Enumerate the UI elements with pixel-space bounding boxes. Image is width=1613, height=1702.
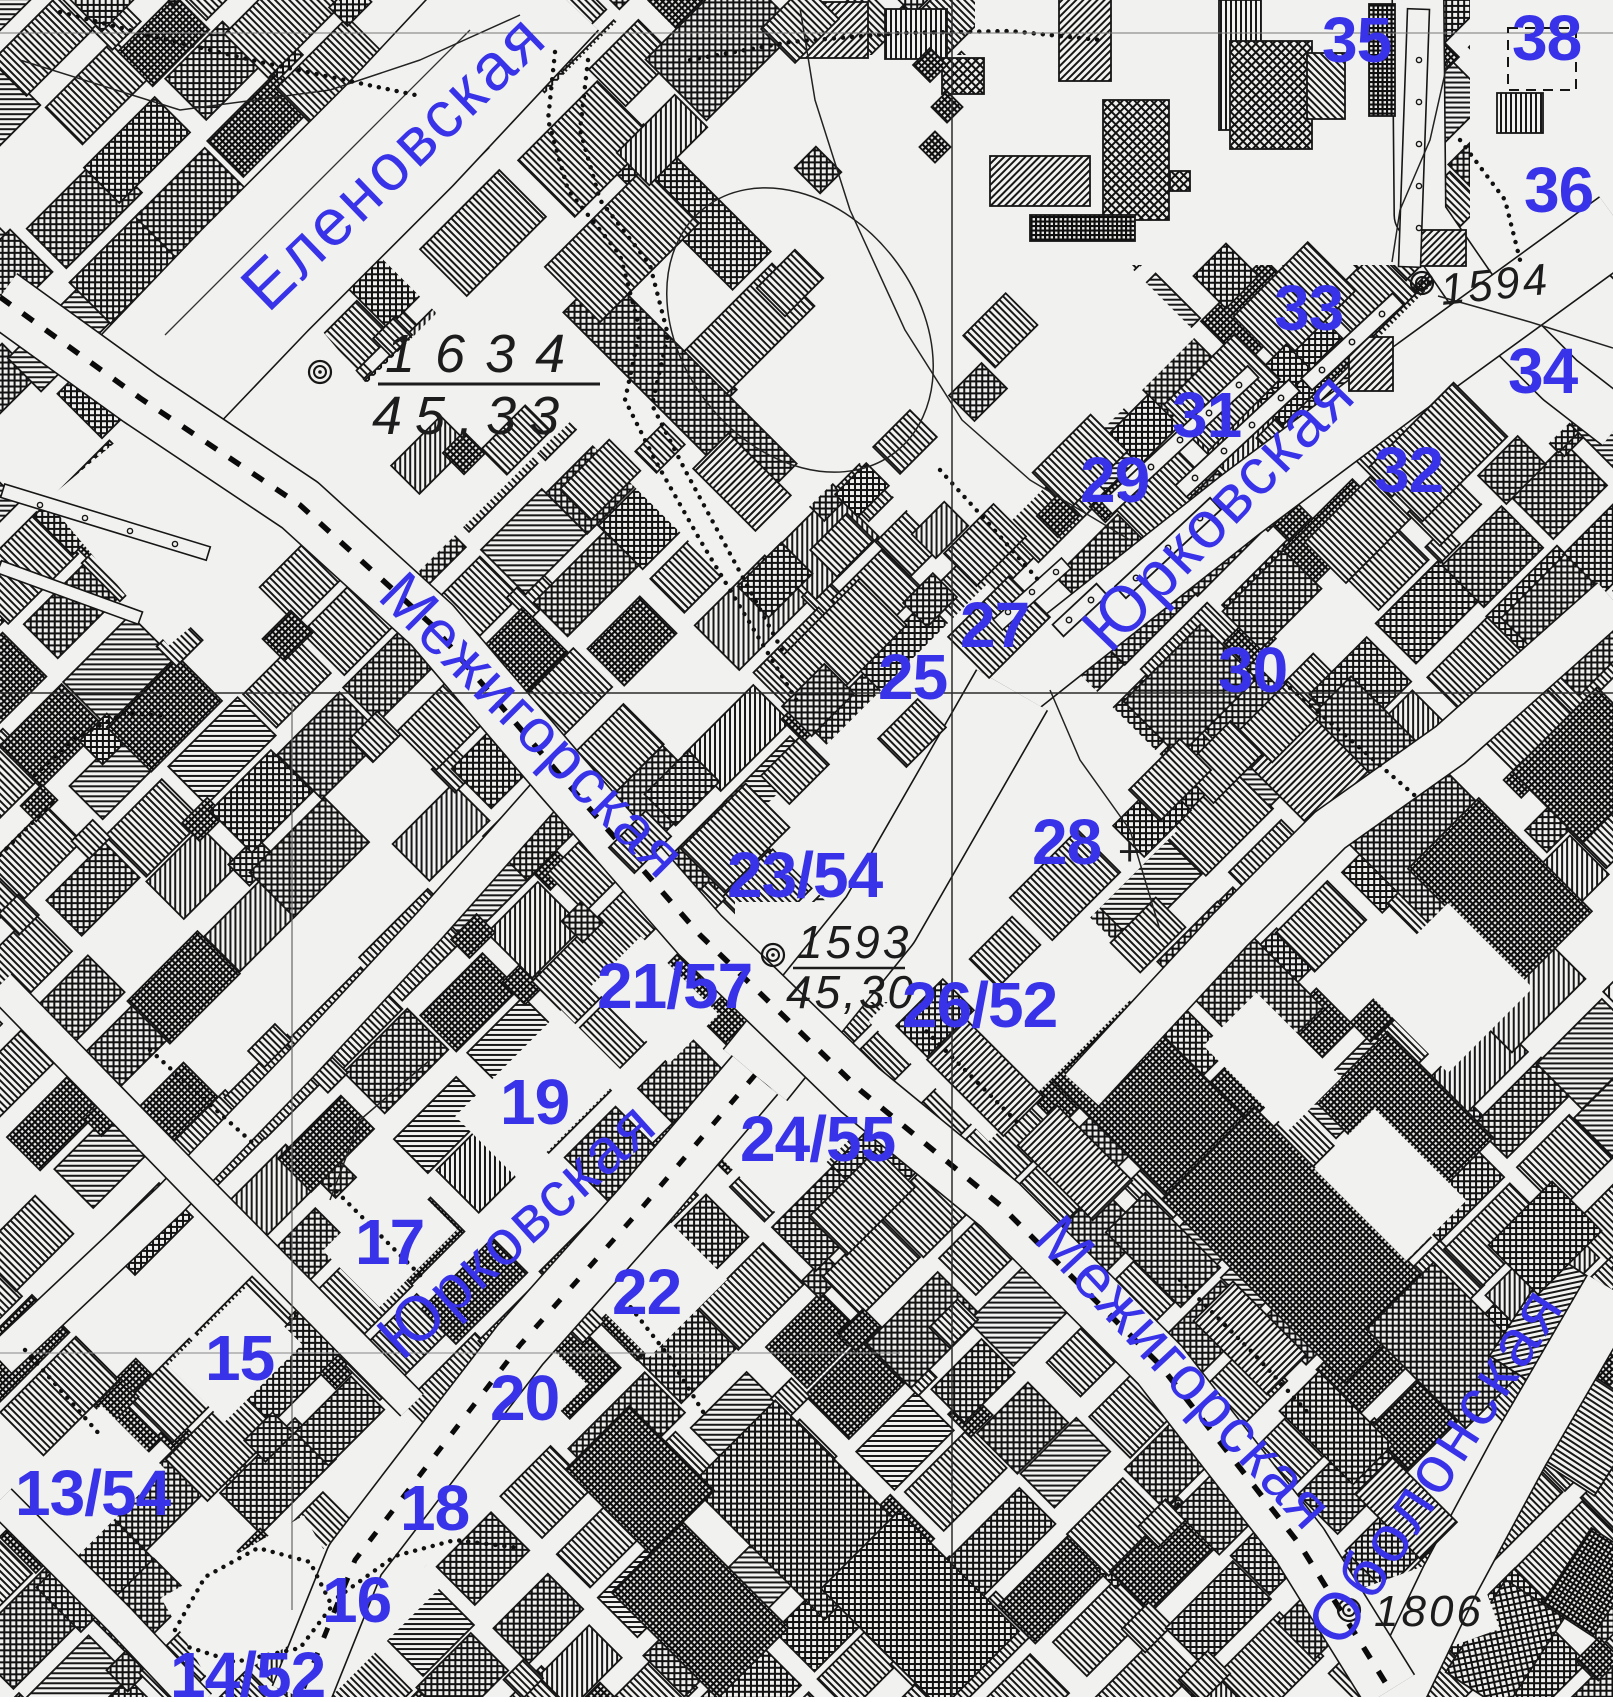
svg-text:17: 17: [355, 1206, 424, 1278]
svg-text:29: 29: [1080, 444, 1149, 516]
svg-text:20: 20: [490, 1362, 559, 1434]
svg-text:16: 16: [322, 1564, 391, 1636]
svg-text:22: 22: [612, 1256, 681, 1328]
svg-text:1634: 1634: [385, 324, 585, 384]
svg-text:32: 32: [1374, 434, 1443, 506]
svg-text:24/55: 24/55: [740, 1103, 895, 1175]
svg-text:45,30: 45,30: [786, 966, 916, 1018]
svg-text:33: 33: [1274, 272, 1343, 344]
svg-text:21/57: 21/57: [597, 950, 752, 1022]
svg-text:36: 36: [1524, 154, 1593, 226]
svg-text:15: 15: [205, 1322, 274, 1394]
svg-text:45,33: 45,33: [372, 386, 572, 446]
svg-text:14/52: 14/52: [170, 1639, 325, 1697]
svg-text:35: 35: [1322, 4, 1391, 76]
svg-text:23/54: 23/54: [727, 839, 884, 911]
svg-text:38: 38: [1512, 2, 1581, 74]
svg-text:13/54: 13/54: [15, 1457, 172, 1529]
svg-text:26/52: 26/52: [902, 969, 1057, 1041]
svg-text:27: 27: [960, 589, 1029, 661]
svg-text:25: 25: [878, 641, 947, 713]
svg-text:28: 28: [1032, 806, 1101, 878]
svg-text:30: 30: [1218, 634, 1287, 706]
svg-text:1593: 1593: [797, 916, 911, 968]
svg-text:34: 34: [1508, 335, 1579, 407]
svg-text:+: +: [1118, 830, 1141, 874]
svg-text:18: 18: [400, 1472, 469, 1544]
svg-text:19: 19: [500, 1066, 569, 1138]
svg-text:31: 31: [1172, 379, 1241, 451]
